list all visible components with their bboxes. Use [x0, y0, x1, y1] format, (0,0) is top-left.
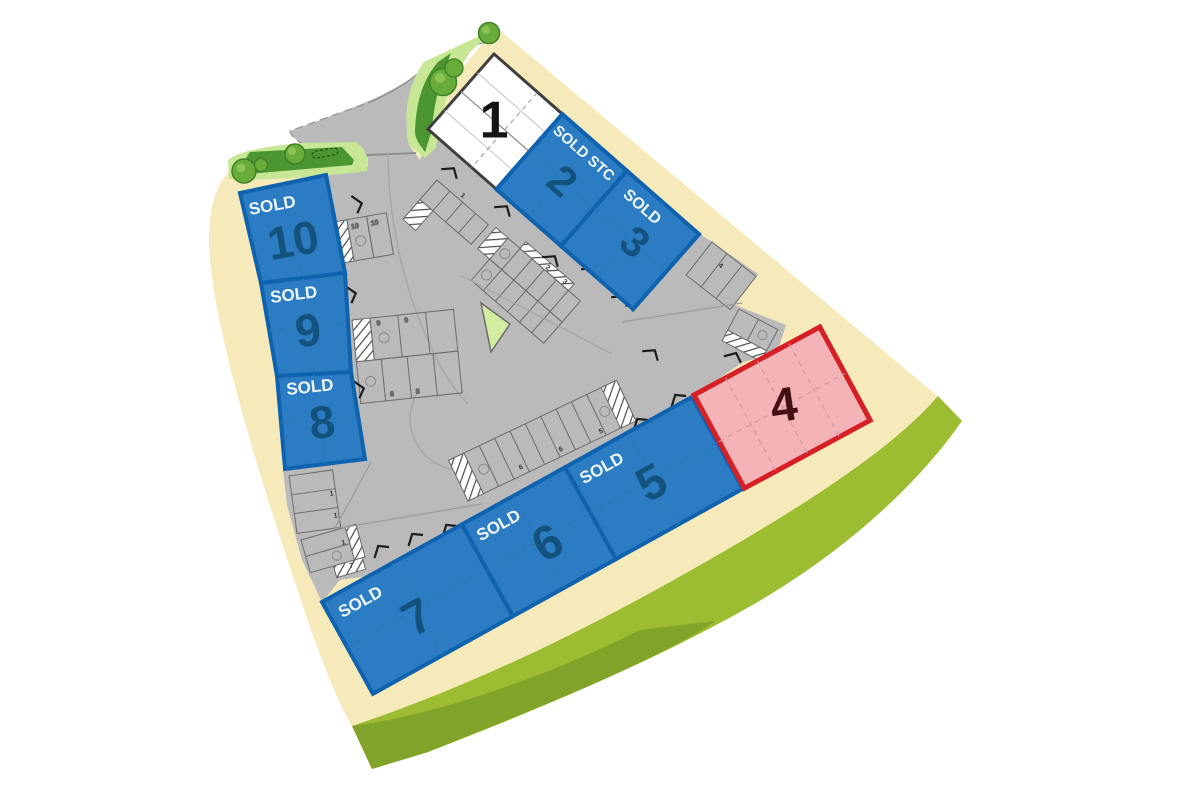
svg-text:1: 1 [480, 92, 509, 150]
svg-text:10: 10 [351, 223, 360, 231]
svg-text:10: 10 [370, 219, 379, 227]
svg-text:10: 10 [263, 210, 322, 270]
svg-text:8: 8 [307, 395, 338, 449]
